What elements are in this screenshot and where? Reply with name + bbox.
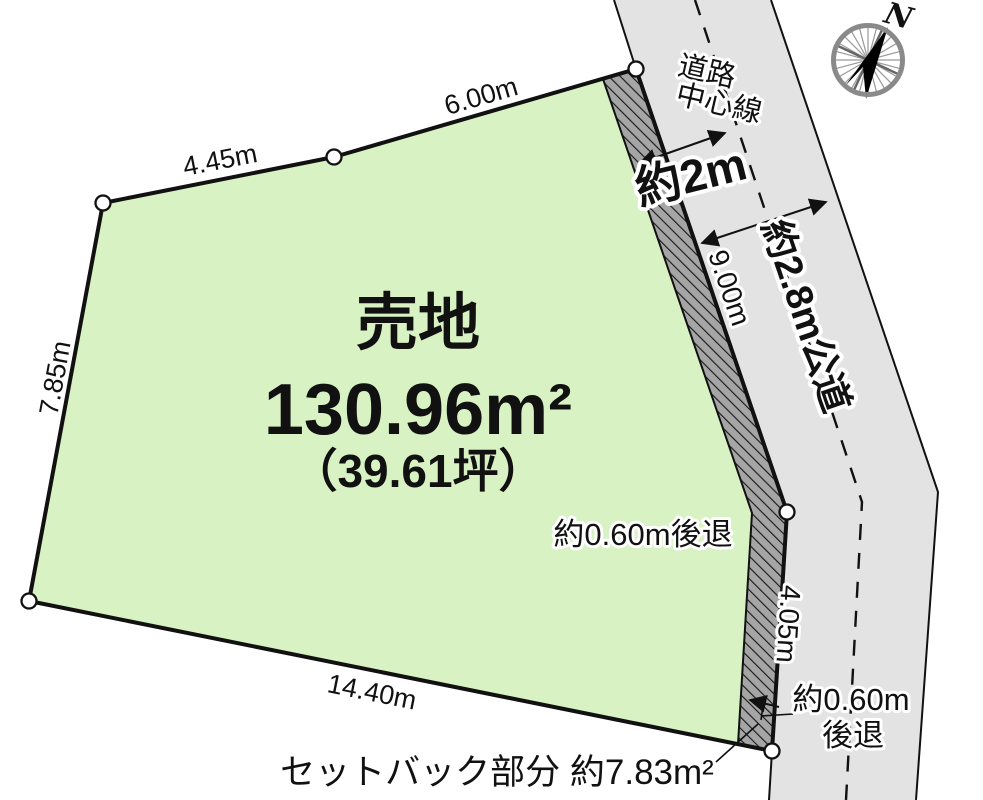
setback-note-right-line1: 約0.60m [792, 682, 909, 717]
vertex-marker-e [765, 744, 780, 759]
setback-area-label: セットバック部分 約7.83m² [280, 753, 714, 792]
setback-note-right-line2: 後退 [822, 718, 884, 753]
vertex-marker-d [780, 505, 795, 520]
vertex-marker-a [96, 196, 111, 211]
compass: N [834, 0, 918, 99]
sale-label: 売地 [356, 289, 480, 358]
plot-diagram-svg: 4.45m 6.00m 7.85m 14.40m 9.00m 4.05m 道路 … [0, 0, 983, 800]
vertex-marker-b [327, 150, 342, 165]
lot-diagram-stage: 4.45m 6.00m 7.85m 14.40m 9.00m 4.05m 道路 … [0, 0, 983, 800]
vertex-marker-f [22, 594, 37, 609]
vertex-marker-c [629, 62, 644, 77]
dim-label-road-lower: 4.05m [771, 584, 807, 664]
area-label: 130.96m² [264, 370, 572, 450]
tsubo-label: （39.61坪） [291, 445, 544, 497]
setback-note-inside: 約0.60m後退 [553, 517, 732, 552]
